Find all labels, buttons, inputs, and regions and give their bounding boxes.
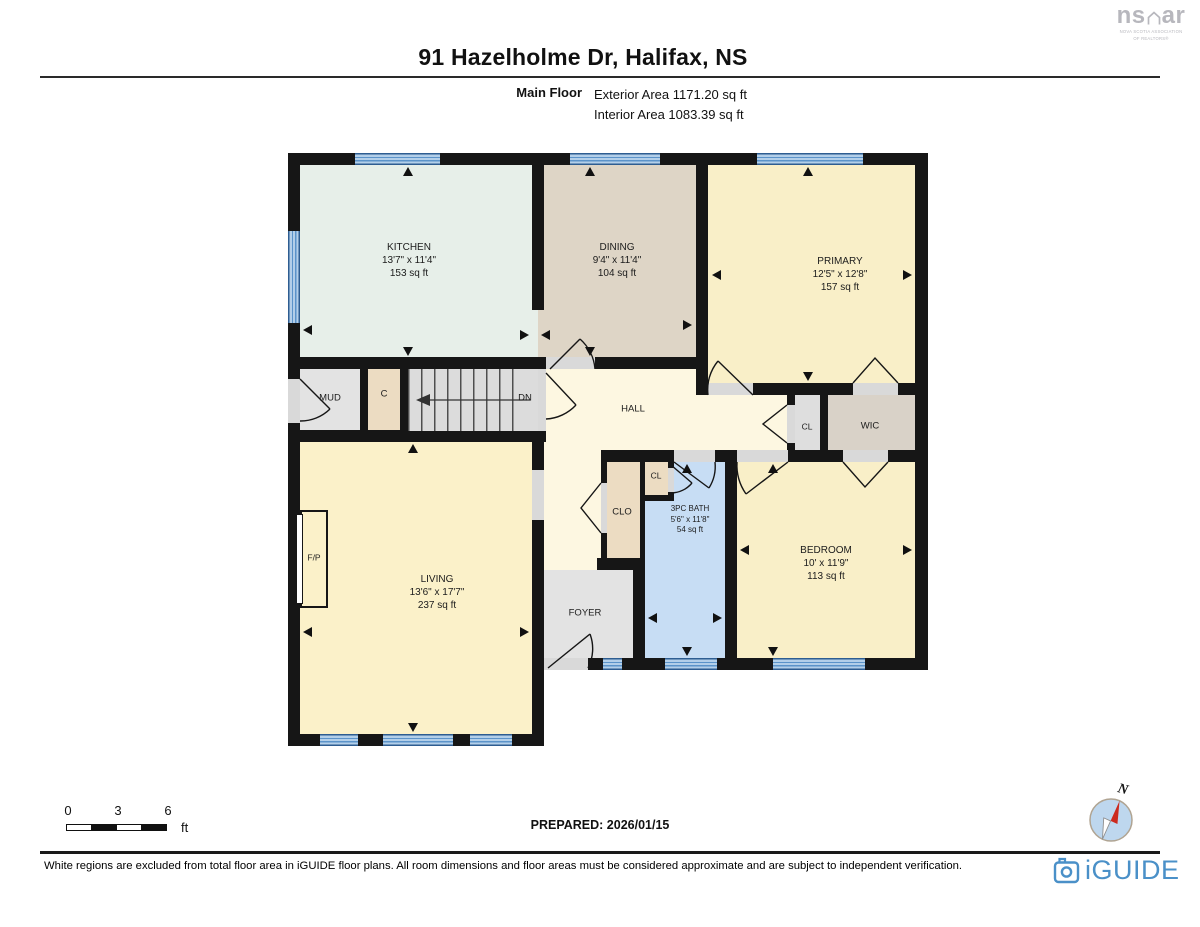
page-title: 91 Hazelholme Dr, Halifax, NS: [0, 44, 1166, 71]
room-label-bedroom: BEDROOM 10' x 11'9" 113 sq ft: [800, 544, 852, 584]
room-label-closet-c: C: [381, 389, 388, 402]
room-area: 104 sq ft: [593, 268, 642, 281]
room-area: 113 sq ft: [800, 571, 852, 584]
room-name: LIVING: [410, 573, 465, 586]
room-dims: 9'4" x 11'4": [593, 254, 642, 267]
room-area: 54 sq ft: [671, 525, 710, 536]
stair-direction-arrow: [416, 394, 530, 406]
nsar-logo: ns ar NOVA SCOTIA ASSOCIATION OF REALTOR…: [1114, 6, 1188, 42]
room-name: CLO: [612, 507, 632, 520]
room-label-stairs-dn: DN: [518, 393, 532, 406]
scale-tick-3: 3: [114, 803, 121, 818]
room-label-kitchen: KITCHEN 13'7" x 11'4" 153 sq ft: [382, 241, 436, 281]
room-label-fireplace: F/P: [307, 552, 320, 563]
interior-area: Interior Area 1083.39 sq ft: [594, 105, 747, 125]
header-divider: [40, 76, 1160, 78]
room-label-primary: PRIMARY 12'5" x 12'8" 157 sq ft: [813, 255, 868, 295]
room-name: PRIMARY: [813, 255, 868, 268]
room-label-hall: HALL: [621, 404, 645, 417]
footer-divider: [40, 851, 1160, 854]
nsar-ns-text: ns: [1117, 6, 1146, 26]
room-area: 153 sq ft: [382, 268, 436, 281]
room-name: CL: [802, 421, 813, 432]
room-dims: 13'7" x 11'4": [382, 254, 436, 267]
room-name: FOYER: [569, 608, 602, 621]
exterior-area: Exterior Area 1171.20 sq ft: [594, 85, 747, 105]
nsar-wordmark: ns ar: [1114, 6, 1188, 26]
room-label-clo: CLO: [612, 507, 632, 520]
nsar-subtitle-line2: OF REALTORS®: [1114, 36, 1188, 42]
floor-plan: KITCHEN 13'7" x 11'4" 153 sq ft DINING 9…: [288, 153, 928, 746]
room-name: HALL: [621, 404, 645, 417]
room-dims: 12'5" x 12'8": [813, 268, 868, 281]
room-name: MUD: [319, 393, 341, 406]
iguide-wordmark: iGUIDE: [1085, 855, 1180, 886]
floorplan-page: ns ar NOVA SCOTIA ASSOCIATION OF REALTOR…: [0, 0, 1200, 927]
room-name: DINING: [593, 241, 642, 254]
disclaimer-text: White regions are excluded from total fl…: [44, 860, 1004, 872]
room-name: C: [381, 389, 388, 402]
room-dims: 10' x 11'9": [800, 557, 852, 570]
room-name: 3PC BATH: [671, 504, 710, 515]
iguide-logo: iGUIDE: [1053, 855, 1180, 886]
room-area: 157 sq ft: [813, 282, 868, 295]
prepared-date: PREPARED: 2026/01/15: [0, 818, 1200, 832]
scale-tick-0: 0: [64, 803, 71, 818]
nsar-subtitle: NOVA SCOTIA ASSOCIATION OF REALTORS®: [1114, 29, 1188, 42]
compass-rose: N: [1082, 776, 1144, 846]
room-dims: 13'6" x 17'7": [410, 586, 465, 599]
room-name: CL: [651, 470, 662, 481]
room-name: KITCHEN: [382, 241, 436, 254]
room-label-bath: 3PC BATH 5'6" x 11'8" 54 sq ft: [671, 504, 710, 536]
floor-label: Main Floor: [400, 85, 582, 100]
scale-tick-6: 6: [164, 803, 171, 818]
room-label-living: LIVING 13'6" x 17'7" 237 sq ft: [410, 573, 465, 613]
room-name: BEDROOM: [800, 544, 852, 557]
nsar-ar-text: ar: [1162, 6, 1186, 26]
room-label-mud: MUD: [319, 393, 341, 406]
compass-north-label: N: [1115, 781, 1130, 799]
room-name: DN: [518, 393, 532, 406]
room-area: 237 sq ft: [410, 600, 465, 613]
area-summary: Exterior Area 1171.20 sq ft Interior Are…: [594, 85, 747, 125]
room-label-cl-bath: CL: [651, 470, 662, 481]
house-icon: [1146, 10, 1162, 26]
room-name: WIC: [861, 421, 879, 434]
nsar-subtitle-line1: NOVA SCOTIA ASSOCIATION: [1114, 29, 1188, 35]
room-label-wic: WIC: [861, 421, 879, 434]
iguide-camera-icon: [1053, 857, 1080, 884]
room-dims: 5'6" x 11'8": [671, 515, 710, 526]
room-label-foyer: FOYER: [569, 608, 602, 621]
room-label-cl-hall: CL: [802, 421, 813, 432]
room-label-dining: DINING 9'4" x 11'4" 104 sq ft: [593, 241, 642, 281]
room-name: F/P: [307, 552, 320, 563]
